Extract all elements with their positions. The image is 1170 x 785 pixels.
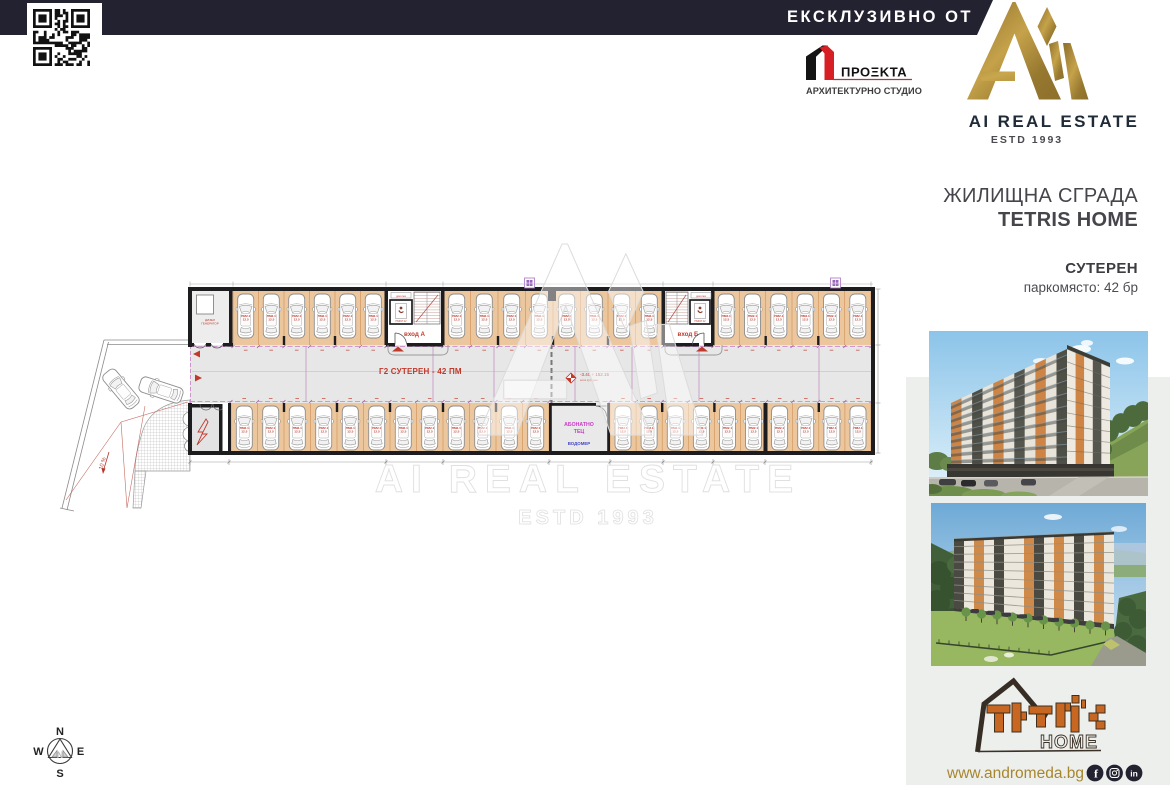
svg-text:AI REAL ESTATE: AI REAL ESTATE bbox=[375, 458, 801, 501]
svg-text:HOME: HOME bbox=[1040, 732, 1098, 752]
svg-text:ПМОЛ 22: ПМОЛ 22 bbox=[396, 320, 408, 323]
svg-text:АРХИТЕКТУРНО СТУДИО: АРХИТЕКТУРНО СТУДИО bbox=[806, 86, 922, 96]
svg-text:S: S bbox=[56, 768, 63, 780]
svg-text:дим.люк: дим.люк bbox=[396, 295, 407, 298]
svg-text:N: N bbox=[56, 726, 64, 738]
svg-text:AI REAL ESTATE: AI REAL ESTATE bbox=[969, 112, 1140, 131]
svg-text:Г2 СУТЕРЕН - 42 ПМ: Г2 СУТЕРЕН - 42 ПМ bbox=[379, 367, 462, 376]
svg-text:N: N bbox=[57, 750, 64, 760]
svg-text:ТЕЦ: ТЕЦ bbox=[574, 429, 585, 435]
svg-text:in: in bbox=[1130, 769, 1138, 779]
svg-text:ВОДОМЕР: ВОДОМЕР bbox=[568, 441, 591, 446]
svg-text:ГЕНЕРАТОР: ГЕНЕРАТОР bbox=[201, 322, 218, 326]
svg-text:ESTD 1993: ESTD 1993 bbox=[518, 507, 657, 529]
svg-text:ПМОЛ 22: ПМОЛ 22 bbox=[695, 320, 707, 323]
svg-text:АБОНАТНО: АБОНАТНО bbox=[564, 422, 594, 428]
svg-text:ESTD 1993: ESTD 1993 bbox=[991, 134, 1063, 146]
svg-text:дим.люк: дим.люк bbox=[696, 295, 707, 298]
svg-text:ПРОΞKTA: ПРОΞKTA bbox=[841, 65, 907, 80]
svg-text:W: W bbox=[33, 746, 44, 758]
svg-text:E: E bbox=[77, 746, 84, 758]
svg-text:вход А: вход А bbox=[404, 331, 425, 338]
